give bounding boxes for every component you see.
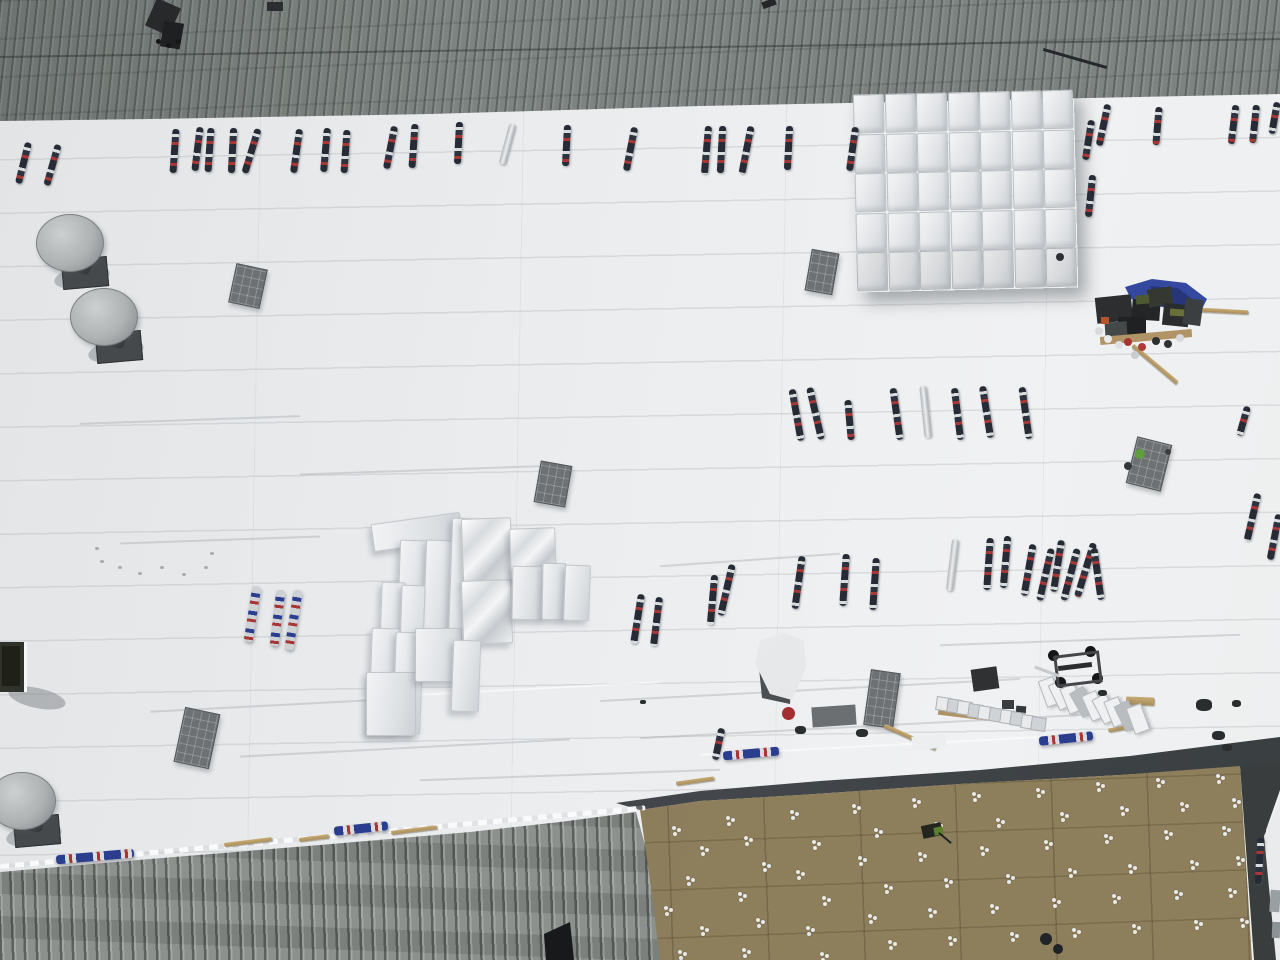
small-object: [1124, 338, 1132, 346]
fastener-plate: [888, 940, 892, 944]
roof-object: [811, 704, 856, 727]
fastener-plate: [686, 876, 690, 880]
fastener-plate: [884, 884, 888, 888]
fastener-plate: [1007, 880, 1011, 884]
fastener-cluster: [756, 918, 766, 930]
fastener-plate: [1217, 780, 1221, 784]
fastener-plate: [738, 892, 742, 896]
vent-cap: [36, 214, 104, 272]
fastener-cluster: [1232, 798, 1242, 810]
small-object: [1152, 337, 1160, 345]
insulation-stack-bundle: [1011, 130, 1043, 170]
fastener-plate: [1161, 780, 1165, 784]
fastener-plate: [948, 936, 952, 940]
insulation-stack-bundle: [1012, 169, 1044, 209]
fastener-plate: [1120, 806, 1124, 810]
fastener-plate: [1194, 920, 1198, 924]
fastener-cluster: [1072, 928, 1082, 940]
insulation-stack-bundle: [1044, 169, 1076, 209]
fastener-cluster: [1010, 932, 1020, 944]
insulation-stack-bundle: [948, 131, 980, 171]
fastener-plate: [1236, 856, 1240, 860]
insulation-bundle: [451, 640, 481, 713]
fastener-plate: [945, 884, 949, 888]
fastener-cluster: [868, 914, 878, 926]
fastener-plate: [795, 812, 799, 816]
fastener-plate: [701, 852, 705, 856]
fastener-plate: [678, 950, 682, 954]
insulation-stack-bundle: [981, 170, 1013, 210]
insulation-stack: [853, 90, 1078, 292]
fastener-cluster: [1228, 888, 1238, 900]
debris-speck: [1232, 700, 1241, 707]
insulation-stack-bundle: [854, 133, 886, 173]
fastener-plate: [953, 938, 957, 942]
fastener-plate: [1169, 832, 1173, 836]
fastener-plate: [949, 942, 953, 946]
fastener-plate: [1241, 858, 1245, 862]
fastener-plate: [743, 954, 747, 958]
fastener-plate: [749, 838, 753, 842]
fastener-cluster: [664, 906, 674, 918]
fastener-plate: [973, 798, 977, 802]
roof-hatch-edge: [24, 642, 27, 692]
fastener-plate: [811, 928, 815, 932]
scuff-mark: [210, 552, 214, 555]
fastener-cluster: [980, 846, 990, 858]
pallet-equipment: [1136, 294, 1150, 304]
fastener-cluster: [1164, 830, 1174, 842]
fastener-cluster: [1190, 860, 1200, 872]
fastener-plate: [791, 816, 795, 820]
fastener-plate: [1137, 926, 1141, 930]
fastener-cluster: [1128, 864, 1138, 876]
fastener-cluster: [1120, 806, 1130, 818]
fastener-cluster: [852, 804, 862, 816]
fastener-cluster: [996, 818, 1006, 830]
fastener-plate: [700, 926, 704, 930]
exhaust-vent: [70, 288, 160, 378]
fastener-plate: [885, 890, 889, 894]
fastener-plate: [807, 932, 811, 936]
fastener-cluster: [686, 876, 696, 888]
fastener-plate: [1175, 896, 1179, 900]
fastener-cluster: [948, 936, 958, 948]
debris-speck: [1196, 699, 1212, 711]
roof-object: [971, 666, 1000, 691]
fastener-plate: [701, 932, 705, 936]
fastener-plate: [1077, 930, 1081, 934]
insulation-bundle: [366, 672, 416, 736]
fastener-plate: [1011, 938, 1015, 942]
fastener-plate: [1195, 926, 1199, 930]
fastener-plate: [1010, 932, 1014, 936]
fastener-plate: [990, 904, 994, 908]
fastener-plate: [1199, 922, 1203, 926]
fastener-plate: [944, 878, 948, 882]
fastener-cluster: [944, 878, 954, 890]
fastener-plate: [859, 862, 863, 866]
fastener-plate: [858, 856, 862, 860]
fastener-plate: [726, 816, 730, 820]
fastener-plate: [1132, 924, 1136, 928]
scuff-mark: [100, 560, 104, 563]
fastener-cluster: [874, 828, 884, 840]
insulation-stack-bundle: [916, 92, 948, 132]
fastener-plate: [980, 846, 984, 850]
fastener-plate: [1041, 790, 1045, 794]
fastener-plate: [868, 914, 872, 918]
fastener-plate: [743, 894, 747, 898]
fastener-cluster: [888, 940, 898, 952]
scuff-mark: [204, 566, 208, 569]
fastener-plate: [672, 826, 676, 830]
debris-speck: [1098, 690, 1107, 696]
insulation-stack-bundle: [885, 133, 917, 173]
fastener-plate: [1165, 836, 1169, 840]
fastener-plate: [1061, 818, 1065, 822]
fastener-plate: [889, 946, 893, 950]
fastener-plate: [1045, 846, 1049, 850]
insulation-stack-bundle: [1014, 248, 1046, 288]
fastener-plate: [1222, 826, 1226, 830]
aerial-roof-photo: [0, 0, 1280, 960]
fastener-cluster: [1104, 834, 1114, 846]
fastener-plate: [691, 878, 695, 882]
insulation-stack-bundle: [918, 211, 950, 251]
small-object: [1135, 449, 1145, 459]
fastener-plate: [1117, 896, 1121, 900]
fastener-plate: [796, 870, 800, 874]
fastener-cluster: [1156, 778, 1166, 790]
fastener-plate: [852, 804, 856, 808]
fastener-plate: [1036, 788, 1040, 792]
fastener-plate: [767, 864, 771, 868]
membrane-roll: [561, 124, 570, 165]
fastener-plate: [1104, 834, 1108, 838]
fastener-plate: [1156, 778, 1160, 782]
fastener-cluster: [806, 926, 816, 938]
fastener-cluster: [972, 792, 982, 804]
fastener-cluster: [1006, 874, 1016, 886]
pallet-equipment: [1182, 298, 1203, 326]
fastener-plate: [1227, 828, 1231, 832]
fastener-plate: [863, 858, 867, 862]
fastener-plate: [742, 948, 746, 952]
small-object: [1095, 327, 1103, 335]
fastener-plate: [731, 818, 735, 822]
fastener-plate: [874, 828, 878, 832]
fastener-cluster: [1044, 840, 1054, 852]
fastener-plate: [756, 918, 760, 922]
small-object: [1056, 253, 1064, 261]
fastener-plate: [1121, 812, 1125, 816]
fastener-plate: [977, 794, 981, 798]
fastener-plate: [673, 832, 677, 836]
fastener-cluster: [1236, 856, 1246, 868]
fastener-plate: [801, 872, 805, 876]
insulation-stack-bundle: [855, 173, 887, 213]
insulation-bundle: [563, 565, 591, 622]
fastener-plate: [923, 854, 927, 858]
fastener-cluster: [1052, 898, 1062, 910]
fastener-plate: [1068, 868, 1072, 872]
fastener-plate: [912, 798, 916, 802]
fastener-plate: [679, 956, 683, 960]
fastener-plate: [817, 842, 821, 846]
membrane-roll: [453, 122, 462, 164]
fastener-plate: [677, 828, 681, 832]
fastener-cluster: [1060, 812, 1070, 824]
fastener-plate: [1241, 924, 1245, 928]
insulation-stack-bundle: [887, 212, 919, 252]
fastener-plate: [683, 952, 687, 956]
fastener-plate: [873, 916, 877, 920]
fastener-plate: [928, 908, 932, 912]
fastener-plate: [1001, 820, 1005, 824]
debris-speck: [640, 700, 646, 704]
fastener-plate: [727, 822, 731, 826]
fastener-plate: [1128, 864, 1132, 868]
small-object: [1124, 462, 1132, 470]
fastener-plate: [981, 852, 985, 856]
pallet-equipment: [1101, 317, 1109, 324]
fastener-plate: [1232, 798, 1236, 802]
fastener-plate: [1096, 782, 1100, 786]
fastener-plate: [744, 836, 748, 840]
fastener-plate: [1072, 928, 1076, 932]
exhaust-vent: [0, 772, 78, 862]
fastener-plate: [1037, 794, 1041, 798]
fastener-cluster: [1112, 894, 1122, 906]
fastener-cluster: [742, 948, 752, 960]
fastener-cluster: [1240, 918, 1250, 930]
fastener-plate: [665, 912, 669, 916]
fastener-plate: [790, 810, 794, 814]
fastener-plate: [893, 942, 897, 946]
fastener-cluster: [726, 816, 736, 828]
fastener-plate: [1229, 894, 1233, 898]
fastener-plate: [1179, 892, 1183, 896]
fastener-plate: [919, 858, 923, 862]
small-object: [176, 39, 181, 44]
insulation-stack-bundle: [855, 212, 887, 252]
debris-speck: [856, 729, 868, 737]
fastener-plate: [664, 906, 668, 910]
fastener-plate: [1181, 808, 1185, 812]
fastener-plate: [1185, 804, 1189, 808]
fastener-plate: [1129, 870, 1133, 874]
scuff-mark: [118, 566, 122, 569]
fastener-plate: [1112, 894, 1116, 898]
fastener-plate: [1191, 866, 1195, 870]
fastener-plate: [1073, 934, 1077, 938]
insulation-stack-bundle: [917, 132, 949, 172]
insulation-stack-bundle: [1013, 209, 1045, 249]
small-object: [1053, 944, 1063, 954]
insulation-stack-bundle: [919, 250, 951, 290]
fastener-plate: [761, 920, 765, 924]
fastener-plate: [918, 852, 922, 856]
insulation-stack-bundle: [951, 250, 983, 290]
fastener-cluster: [1096, 782, 1106, 794]
fastener-cluster: [928, 908, 938, 920]
fastener-plate: [745, 842, 749, 846]
fastener-plate: [739, 898, 743, 902]
insulation-bundle: [512, 566, 545, 621]
fastener-cluster: [858, 856, 868, 868]
insulation-stack-bundle: [884, 93, 916, 133]
roof-object: [1002, 700, 1014, 709]
insulation-stack-bundle: [949, 171, 981, 211]
insulation-stack-bundle: [1044, 208, 1076, 248]
fastener-plate: [1060, 812, 1064, 816]
fastener-plate: [763, 868, 767, 872]
fastener-plate: [972, 792, 976, 796]
fastener-cluster: [1194, 920, 1204, 932]
fastener-cluster: [1216, 774, 1226, 786]
fastener-plate: [1240, 918, 1244, 922]
scuff-mark: [160, 566, 164, 569]
fastener-plate: [1006, 874, 1010, 878]
fastener-cluster: [744, 836, 754, 848]
fastener-plate: [1053, 904, 1057, 908]
fastener-plate: [1101, 784, 1105, 788]
scuff-mark: [95, 547, 99, 550]
fastener-plate: [823, 902, 827, 906]
fastener-cluster: [820, 952, 830, 960]
insulation-bundle: [461, 517, 513, 583]
fastener-plate: [1221, 776, 1225, 780]
fastener-plate: [812, 840, 816, 844]
fastener-plate: [1073, 870, 1077, 874]
fastener-cluster: [700, 926, 710, 938]
roof-object: [1272, 922, 1280, 938]
fastener-cluster: [1222, 826, 1232, 838]
small-object: [1131, 351, 1139, 359]
fastener-plate: [1049, 842, 1053, 846]
fastener-plate: [913, 804, 917, 808]
insulation-stack-bundle: [1010, 90, 1042, 130]
fastener-plate: [700, 846, 704, 850]
fastener-cluster: [678, 950, 688, 960]
small-object: [1138, 343, 1146, 351]
roof-object: [1269, 890, 1280, 913]
fastener-plate: [949, 880, 953, 884]
fastener-plate: [822, 896, 826, 900]
debris-speck: [1222, 744, 1232, 751]
plate-box: [1030, 716, 1047, 732]
fastener-cluster: [1174, 890, 1184, 902]
fastener-cluster: [762, 862, 772, 874]
fastener-plate: [875, 834, 879, 838]
fastener-cluster: [700, 846, 710, 858]
scuff-mark: [138, 572, 142, 575]
fastener-cluster: [738, 892, 748, 904]
fastener-plate: [985, 848, 989, 852]
fastener-plate: [1164, 830, 1168, 834]
fastener-plate: [762, 862, 766, 866]
fastener-cluster: [1132, 924, 1142, 936]
vent-cap: [70, 288, 138, 346]
fastener-plate: [917, 800, 921, 804]
small-object: [1176, 334, 1184, 342]
small-object: [166, 43, 171, 48]
fastener-plate: [1113, 900, 1117, 904]
insulation-bundle: [461, 579, 513, 645]
insulation-stack-bundle: [947, 92, 979, 132]
fastener-cluster: [812, 840, 822, 852]
fastener-cluster: [990, 904, 1000, 916]
fastener-plate: [1237, 862, 1241, 866]
fastener-cluster: [672, 826, 682, 838]
insulation-stack-bundle: [980, 130, 1012, 170]
fastener-plate: [705, 848, 709, 852]
fastener-plate: [1157, 784, 1161, 788]
fastener-plate: [827, 898, 831, 902]
fastener-plate: [1223, 832, 1227, 836]
fastener-plate: [1133, 866, 1137, 870]
fastener-plate: [813, 846, 817, 850]
insulation-stack-bundle: [918, 171, 950, 211]
fastener-plate: [1174, 890, 1178, 894]
small-object: [1165, 449, 1171, 455]
fastener-plate: [1065, 814, 1069, 818]
insulation-stack-bundle: [981, 209, 1013, 249]
fastener-plate: [1097, 788, 1101, 792]
insulation-stack-bundle: [1043, 129, 1075, 169]
fastener-plate: [820, 952, 824, 956]
fastener-plate: [1105, 840, 1109, 844]
debris-speck: [1212, 731, 1225, 740]
fastener-plate: [869, 920, 873, 924]
insulation-stack-bundle: [888, 251, 920, 291]
fastener-cluster: [918, 852, 928, 864]
fastener-plate: [825, 954, 829, 958]
fastener-plate: [1233, 890, 1237, 894]
roof-object: [267, 2, 283, 11]
small-object: [1164, 340, 1172, 348]
fastener-plate: [1011, 876, 1015, 880]
fastener-cluster: [912, 798, 922, 810]
fastener-cluster: [1180, 802, 1190, 814]
fastener-plate: [1015, 934, 1019, 938]
fastener-cluster: [796, 870, 806, 882]
fastener-plate: [1052, 898, 1056, 902]
insulation-stack-bundle: [1042, 90, 1074, 130]
fastener-cluster: [884, 884, 894, 896]
fastener-plate: [995, 906, 999, 910]
small-object: [1104, 335, 1112, 343]
fastener-plate: [1057, 900, 1061, 904]
fastener-plate: [1245, 920, 1249, 924]
fastener-plate: [1180, 802, 1184, 806]
insulation-stack-bundle: [982, 249, 1014, 289]
insulation-stack-bundle: [886, 172, 918, 212]
scuff-mark: [182, 573, 186, 576]
fastener-plate: [1233, 804, 1237, 808]
small-object: [1115, 341, 1123, 349]
fastener-plate: [757, 924, 761, 928]
debris-speck: [795, 726, 806, 734]
fastener-plate: [1228, 888, 1232, 892]
fastener-plate: [797, 876, 801, 880]
fastener-plate: [1069, 874, 1073, 878]
insulation-stack-bundle: [950, 210, 982, 250]
fastener-cluster: [822, 896, 832, 908]
fastener-plate: [929, 914, 933, 918]
fastener-plate: [1109, 836, 1113, 840]
